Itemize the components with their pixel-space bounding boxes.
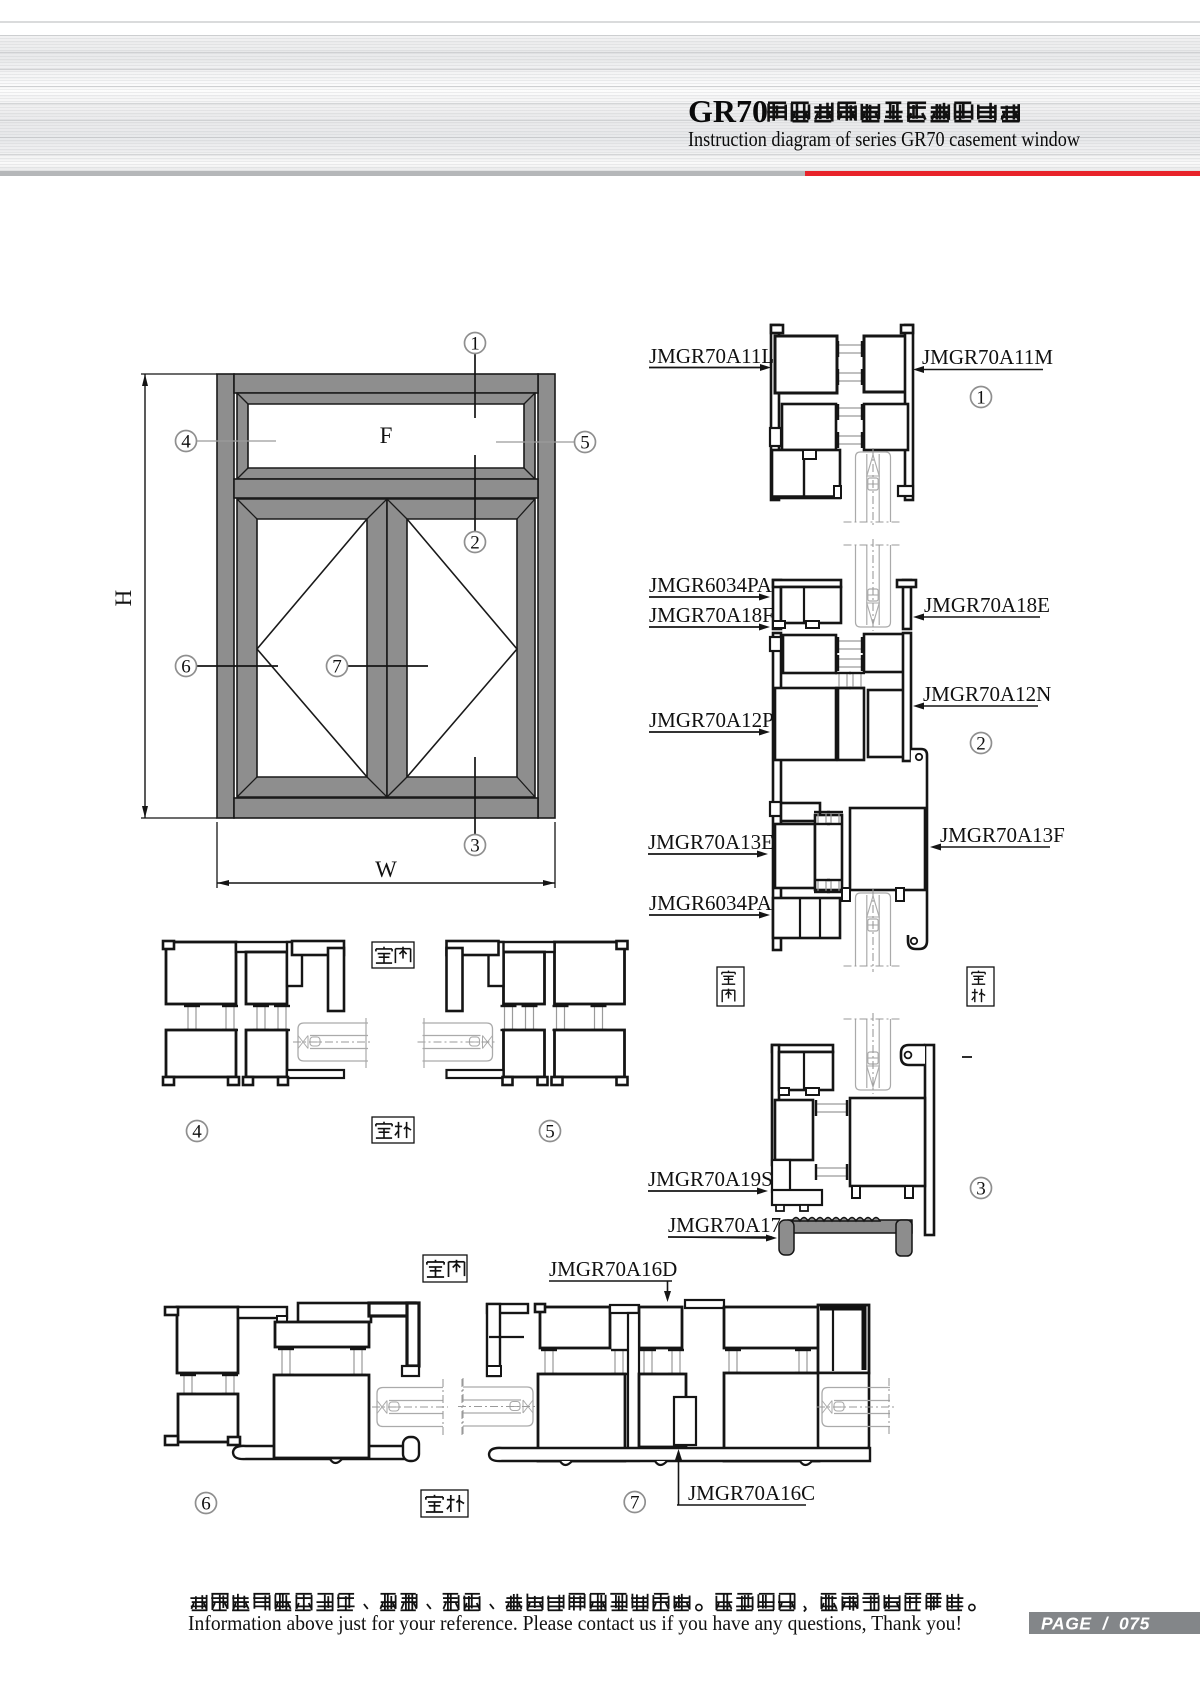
svg-text:JMGR70A16C: JMGR70A16C bbox=[688, 1481, 815, 1505]
svg-text:JMGR70A11M: JMGR70A11M bbox=[922, 345, 1053, 369]
svg-text:F: F bbox=[380, 423, 393, 448]
svg-text:1: 1 bbox=[976, 388, 986, 409]
svg-text:4: 4 bbox=[181, 432, 191, 453]
svg-text:JMGR70A19S: JMGR70A19S bbox=[648, 1167, 773, 1191]
svg-text:2: 2 bbox=[976, 734, 986, 755]
svg-text:5: 5 bbox=[545, 1122, 555, 1143]
svg-text:3: 3 bbox=[470, 836, 480, 857]
svg-text:Instruction diagram of series: Instruction diagram of series GR70 casem… bbox=[688, 127, 1080, 151]
svg-text:JMGR6034PA: JMGR6034PA bbox=[649, 573, 773, 597]
svg-text:3: 3 bbox=[976, 1179, 986, 1200]
svg-text:2: 2 bbox=[470, 533, 480, 554]
svg-text:W: W bbox=[375, 857, 397, 882]
svg-text:JMGR70A12N: JMGR70A12N bbox=[923, 682, 1051, 706]
svg-text:5: 5 bbox=[580, 433, 590, 454]
svg-text:JMGR70A13E: JMGR70A13E bbox=[648, 830, 774, 854]
svg-text:7: 7 bbox=[332, 657, 342, 678]
svg-text:4: 4 bbox=[192, 1122, 202, 1143]
svg-text:JMGR70A11L: JMGR70A11L bbox=[649, 344, 774, 368]
svg-text:JMGR70A17: JMGR70A17 bbox=[668, 1213, 781, 1237]
svg-text:1: 1 bbox=[470, 334, 480, 355]
svg-text:JMGR70A18F: JMGR70A18F bbox=[649, 603, 774, 627]
svg-text:JMGR70A13F: JMGR70A13F bbox=[940, 823, 1065, 847]
svg-text:JMGR70A16D: JMGR70A16D bbox=[549, 1257, 677, 1281]
svg-text:6: 6 bbox=[201, 1494, 211, 1515]
svg-text:JMGR6034PA: JMGR6034PA bbox=[649, 891, 773, 915]
svg-text:Information above just for you: Information above just for your referenc… bbox=[188, 1611, 962, 1635]
svg-text:6: 6 bbox=[181, 657, 191, 678]
svg-text:H: H bbox=[111, 590, 136, 607]
svg-text:JMGR70A12P: JMGR70A12P bbox=[649, 708, 774, 732]
svg-text:7: 7 bbox=[630, 1493, 640, 1514]
svg-text:GR70: GR70 bbox=[688, 93, 768, 129]
svg-text:JMGR70A18E: JMGR70A18E bbox=[924, 593, 1050, 617]
svg-text:PAGE / 075: PAGE / 075 bbox=[1041, 1614, 1150, 1634]
